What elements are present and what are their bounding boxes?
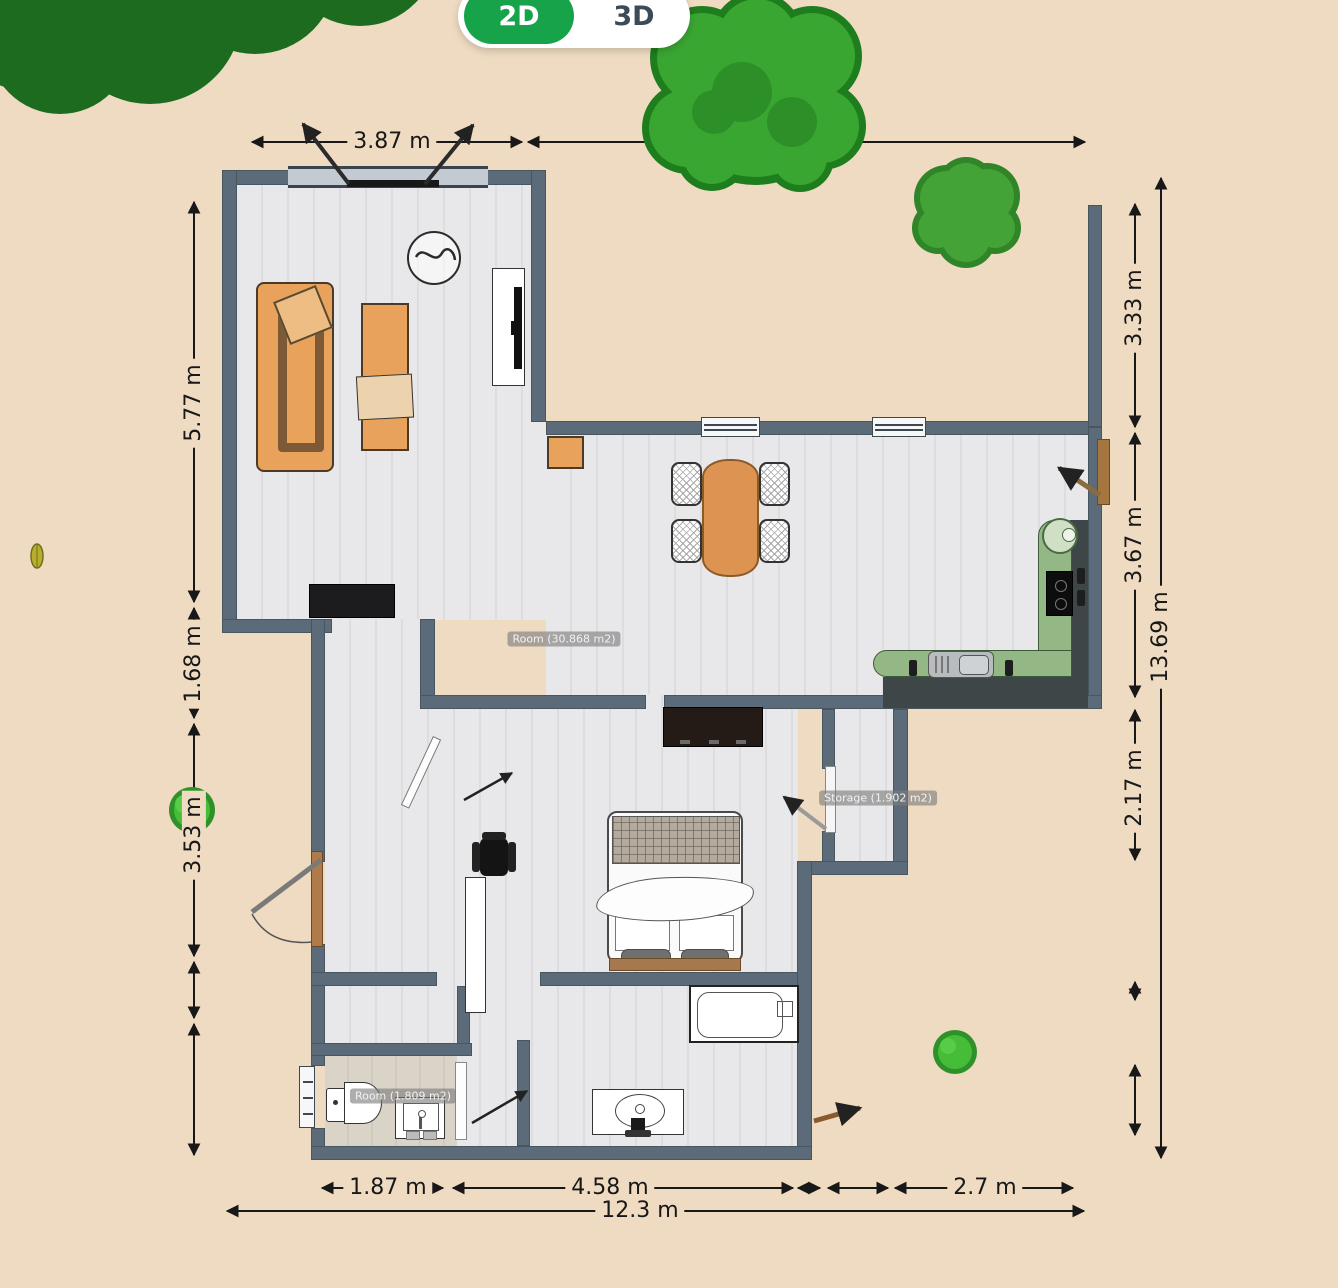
dim-left-mid: 1.68 m: [182, 619, 206, 708]
wall-mid-left: [311, 972, 437, 986]
tv-console[interactable]: [492, 268, 525, 386]
dim-bottom-right: 2.7 m: [947, 1176, 1022, 1200]
window-living[interactable]: [288, 166, 488, 188]
tree-small-icon: [912, 157, 1021, 268]
table-throw: [356, 374, 414, 421]
toggle-3d-label: 3D: [613, 1, 654, 32]
view-mode-toggle: 2D 3D: [458, 0, 690, 48]
kitchen-round-sink: [1042, 518, 1078, 554]
dresser[interactable]: [663, 707, 763, 747]
sink-knob-right: [1005, 660, 1013, 676]
dim-top: 3.87 m: [347, 130, 436, 154]
wc-sink-tap-1: [406, 1131, 420, 1140]
floorplan-canvas: Room (30.868 m2) Storage (1.902 m2) Room…: [0, 0, 1338, 1288]
sofa[interactable]: [256, 282, 334, 472]
cooktop-knob-1: [1077, 568, 1085, 584]
wall-living-left: [222, 170, 237, 633]
dim-bottom-total: 12.3 m: [595, 1199, 684, 1223]
floor-passage: [531, 422, 546, 620]
dining-chair-1[interactable]: [671, 462, 702, 506]
wall-storage-left-upper: [822, 709, 835, 769]
room-label-storage: Storage (1.902 m2): [819, 791, 937, 806]
dim-right-mid: 3.67 m: [1123, 500, 1147, 589]
dim-bottom-left: 1.87 m: [343, 1176, 432, 1200]
wc-sink-pipe: [419, 1117, 422, 1129]
wall-living-right: [531, 170, 546, 422]
bed-headboard: [612, 816, 740, 864]
dim-right-upper: 3.33 m: [1123, 263, 1147, 352]
bathtub-faucet: [777, 1001, 793, 1017]
kitchen-counter-back-bottom: [883, 677, 1088, 708]
ceiling-fan[interactable]: [407, 231, 461, 285]
sprout-icon: [31, 544, 43, 568]
dining-chair-4[interactable]: [759, 519, 790, 563]
desk[interactable]: [465, 877, 486, 1013]
wall-mid-right: [540, 972, 798, 986]
cooktop[interactable]: [1046, 571, 1073, 616]
dim-right-lower: 2.17 m: [1123, 743, 1147, 832]
wall-storage-bottom: [797, 861, 908, 875]
sink-knob-left: [909, 660, 917, 676]
dining-chair-3[interactable]: [759, 462, 790, 506]
dim-right-total: 13.69 m: [1149, 585, 1173, 688]
kitchen-door[interactable]: [1097, 439, 1110, 505]
room-label-main: Room (30.868 m2): [507, 632, 620, 647]
wall-bedroom-top-left: [420, 695, 646, 709]
bathtub[interactable]: [689, 985, 799, 1043]
wall-hall-left-upper: [311, 619, 325, 862]
dim-bottom-mid: 4.58 m: [565, 1176, 654, 1200]
wall-garden-right: [1088, 205, 1102, 427]
bed-sheet-right: [679, 915, 734, 951]
tree-dark-topleft-icon: [0, 0, 438, 114]
dining-table[interactable]: [702, 459, 759, 577]
wall-bath-left: [517, 1040, 530, 1146]
bush-right-icon: [933, 1030, 977, 1074]
office-chair[interactable]: [472, 832, 516, 880]
window-kitchen-1[interactable]: [701, 417, 760, 437]
dim-left-upper: 5.77 m: [182, 358, 206, 447]
toggle-2d-button[interactable]: 2D: [464, 0, 574, 44]
toilet-flush: [333, 1100, 338, 1105]
fan-blades-icon: [409, 233, 463, 287]
wc-door[interactable]: [455, 1062, 467, 1140]
toggle-2d-label: 2D: [498, 1, 539, 32]
entry-door[interactable]: [311, 851, 323, 947]
bathtub-basin: [697, 992, 783, 1038]
bed-base: [609, 958, 741, 971]
wall-exterior-right-lower: [797, 861, 812, 1160]
window-kitchen-2[interactable]: [872, 417, 926, 437]
vanity-drain: [635, 1104, 645, 1114]
wc-sink-tap-2: [423, 1131, 437, 1140]
wall-bottom: [311, 1146, 812, 1160]
window-curtain-bar: [347, 180, 439, 187]
floor-storage: [835, 709, 893, 861]
kitchen-sink[interactable]: [928, 651, 994, 678]
wall-cabinet[interactable]: [547, 436, 584, 469]
wall-kitchen-top: [546, 421, 1102, 435]
vanity-sink[interactable]: [592, 1089, 684, 1135]
window-wc[interactable]: [299, 1066, 315, 1128]
sideboard-black[interactable]: [309, 584, 395, 618]
dim-left-lower: 3.53 m: [182, 790, 206, 879]
dining-chair-2[interactable]: [671, 519, 702, 563]
wall-wc-top: [311, 1043, 472, 1056]
tv-stand: [511, 321, 517, 335]
cooktop-knob-2: [1077, 590, 1085, 606]
vanity-faucet-base: [625, 1130, 651, 1137]
room-label-wc: Room (1.809 m2): [350, 1089, 456, 1104]
toggle-3d-button[interactable]: 3D: [586, 0, 682, 44]
